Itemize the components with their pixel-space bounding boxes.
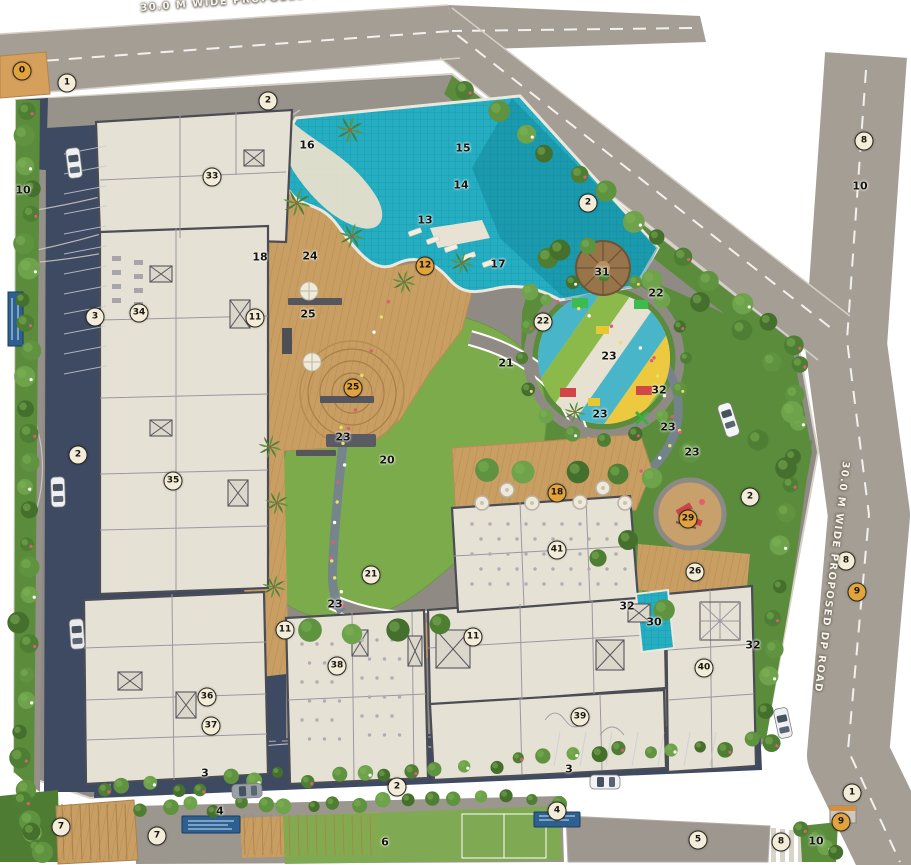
site-plan-canvas: 0121033161514131217281018242511343312222…	[0, 0, 911, 865]
site-plan-illustration	[0, 0, 911, 865]
car	[69, 619, 85, 650]
deck-bench	[288, 298, 342, 305]
south-lawn	[283, 806, 562, 864]
outdoor-gym-pad	[656, 480, 724, 548]
car	[773, 707, 793, 739]
entry-ramp-pad	[0, 52, 50, 98]
amphitheater-stage	[326, 434, 376, 447]
deck-bench	[320, 396, 374, 403]
outdoor-bar-counter	[282, 328, 292, 354]
right-dp-road	[846, 55, 905, 865]
car	[590, 775, 620, 789]
car	[232, 783, 263, 799]
security-gate-cabin	[830, 806, 856, 823]
building-34-35-floorplan	[100, 226, 268, 594]
deck-bench	[296, 450, 336, 456]
car	[50, 477, 65, 507]
building-36-37-floorplan	[84, 592, 268, 784]
visitor-parking-pad	[566, 816, 770, 862]
